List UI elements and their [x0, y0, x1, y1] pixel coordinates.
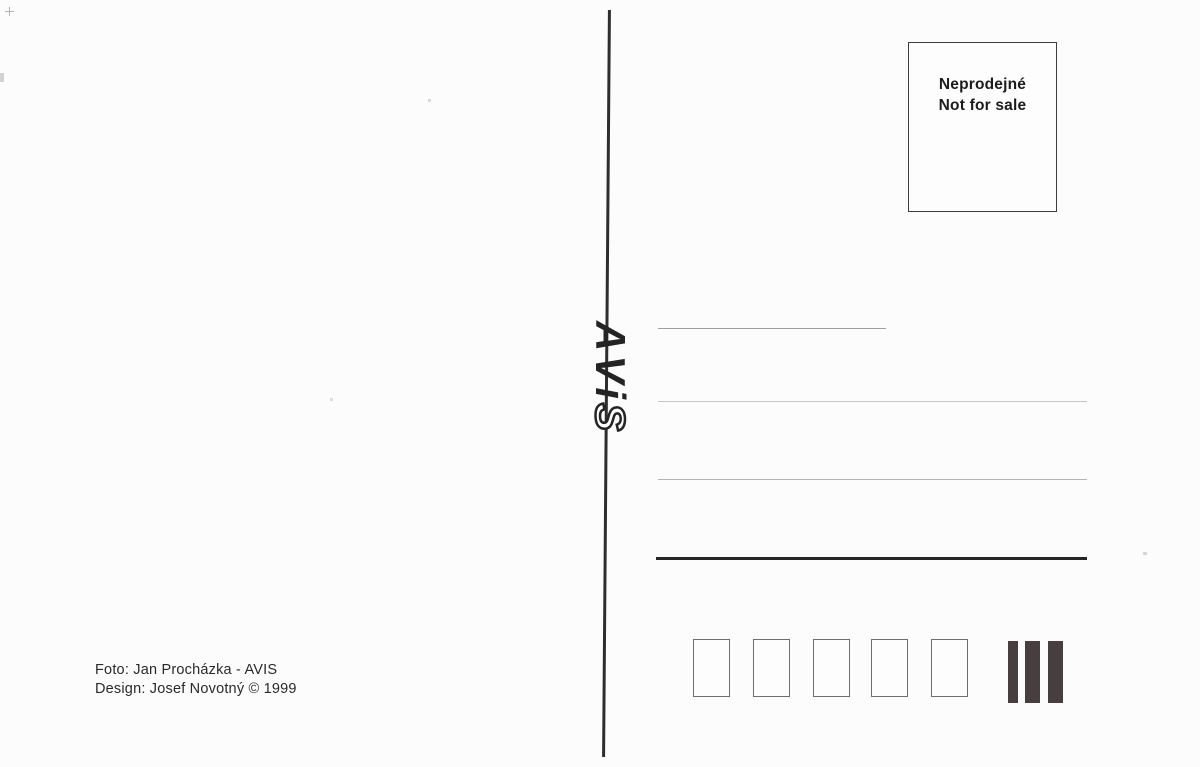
postcard-back: AViS Neprodejné Not for sale Foto: Jan P… — [0, 0, 1200, 767]
address-line-thick — [656, 557, 1087, 560]
scan-artifact — [428, 99, 431, 102]
logo-letter-a: A — [589, 321, 631, 355]
credit-design: Design: Josef Novotný © 1999 — [95, 680, 297, 699]
logo-letter-i: i — [589, 387, 631, 403]
avis-logo: AViS — [589, 321, 631, 435]
sorting-bar — [1048, 641, 1063, 703]
stamp-box: Neprodejné Not for sale — [908, 42, 1057, 212]
postal-code-box — [753, 639, 790, 697]
scan-artifact — [1143, 552, 1147, 555]
logo-letter-v: V — [589, 355, 631, 387]
address-line-3 — [658, 479, 1087, 480]
credit-photo: Foto: Jan Procházka - AVIS — [95, 661, 297, 680]
sorting-bar — [1025, 641, 1040, 703]
credits: Foto: Jan Procházka - AVIS Design: Josef… — [95, 661, 297, 698]
postal-code-box — [693, 639, 730, 697]
postal-code-box — [931, 639, 968, 697]
stamp-text-czech: Neprodejné — [909, 74, 1056, 95]
scan-artifact — [0, 73, 4, 82]
address-line-1 — [658, 328, 886, 329]
logo-letter-s: S — [589, 403, 631, 435]
postal-code-box — [813, 639, 850, 697]
address-line-2 — [658, 401, 1087, 402]
sorting-bar — [1008, 641, 1018, 703]
stamp-text-english: Not for sale — [909, 95, 1056, 116]
postal-code-box — [871, 639, 908, 697]
scan-artifact — [9, 7, 10, 16]
scan-artifact — [330, 398, 333, 401]
